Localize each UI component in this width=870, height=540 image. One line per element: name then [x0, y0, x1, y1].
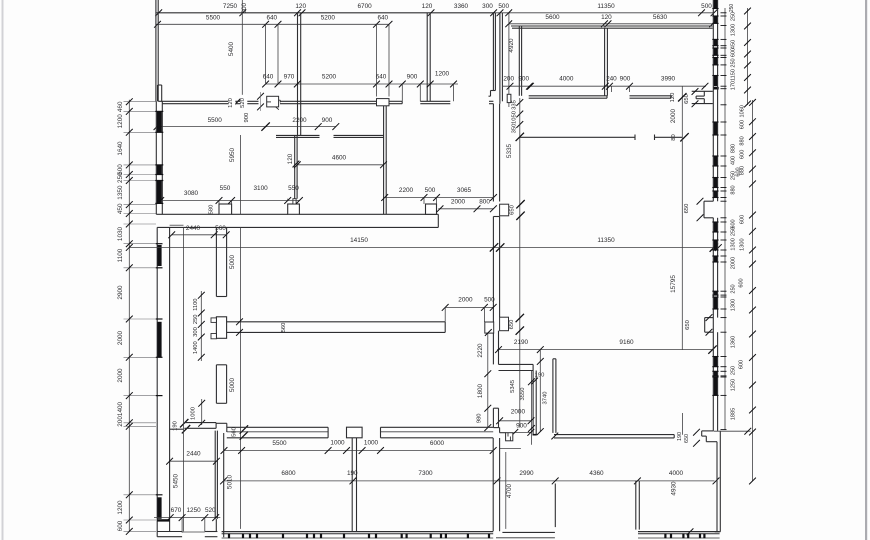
- svg-text:640: 640: [376, 73, 387, 80]
- svg-text:500: 500: [425, 187, 436, 194]
- svg-text:250: 250: [117, 172, 124, 183]
- svg-text:170: 170: [731, 81, 737, 90]
- svg-text:650: 650: [684, 204, 690, 214]
- svg-text:880: 880: [740, 136, 746, 145]
- svg-text:670: 670: [171, 507, 182, 514]
- svg-text:650: 650: [684, 434, 690, 443]
- svg-text:6700: 6700: [357, 3, 372, 10]
- svg-text:1360: 1360: [731, 336, 737, 348]
- svg-text:600: 600: [739, 360, 745, 369]
- svg-text:1050: 1050: [512, 111, 518, 124]
- svg-text:1100: 1100: [117, 248, 124, 262]
- svg-text:200: 200: [117, 416, 124, 427]
- svg-text:2220: 2220: [477, 343, 484, 358]
- svg-text:1150: 1150: [731, 69, 737, 81]
- svg-text:200: 200: [503, 76, 514, 83]
- svg-text:980: 980: [477, 413, 483, 423]
- svg-text:1200: 1200: [117, 500, 124, 515]
- svg-text:2440: 2440: [186, 225, 201, 232]
- svg-text:2900: 2900: [117, 285, 124, 300]
- svg-text:2000: 2000: [670, 108, 677, 123]
- svg-text:120: 120: [228, 98, 234, 108]
- svg-text:4930: 4930: [670, 481, 677, 496]
- svg-text:520: 520: [240, 98, 246, 108]
- svg-text:880: 880: [731, 185, 737, 194]
- svg-text:3550: 3550: [520, 388, 526, 401]
- svg-text:900: 900: [322, 117, 333, 124]
- svg-text:450: 450: [731, 40, 737, 49]
- svg-text:2000: 2000: [511, 408, 526, 415]
- svg-text:1640: 1640: [117, 141, 124, 156]
- svg-text:1030: 1030: [117, 226, 124, 241]
- svg-text:650: 650: [509, 320, 515, 330]
- svg-text:1000: 1000: [364, 440, 379, 447]
- svg-text:120: 120: [287, 153, 294, 164]
- svg-text:6800: 6800: [281, 470, 296, 477]
- svg-text:600: 600: [740, 120, 746, 129]
- svg-text:1350: 1350: [117, 185, 124, 200]
- svg-text:350: 350: [512, 124, 518, 134]
- svg-text:600: 600: [739, 278, 745, 287]
- svg-text:250: 250: [731, 227, 737, 236]
- svg-text:900: 900: [620, 76, 631, 83]
- svg-text:3065: 3065: [457, 187, 472, 194]
- svg-text:1000: 1000: [190, 407, 196, 420]
- svg-text:300: 300: [241, 2, 248, 13]
- svg-text:400: 400: [731, 156, 737, 165]
- svg-text:600: 600: [731, 48, 737, 57]
- svg-text:5600: 5600: [545, 14, 560, 21]
- svg-text:2990: 2990: [519, 470, 534, 477]
- svg-text:5335: 5335: [506, 143, 513, 158]
- svg-text:800: 800: [479, 199, 490, 206]
- svg-text:11350: 11350: [597, 3, 615, 10]
- svg-text:4000: 4000: [559, 76, 574, 83]
- svg-text:5200: 5200: [321, 15, 336, 22]
- svg-text:250: 250: [729, 4, 735, 13]
- svg-text:900: 900: [518, 76, 529, 83]
- svg-text:560: 560: [281, 323, 287, 333]
- svg-text:4700: 4700: [506, 483, 513, 498]
- svg-text:1300: 1300: [740, 238, 746, 250]
- svg-text:5630: 5630: [653, 14, 668, 21]
- svg-text:3100: 3100: [253, 185, 268, 192]
- svg-text:250: 250: [193, 314, 199, 324]
- svg-text:2000: 2000: [117, 330, 124, 345]
- svg-text:190: 190: [535, 373, 545, 379]
- svg-text:1400: 1400: [193, 341, 199, 354]
- svg-text:520: 520: [205, 507, 216, 514]
- svg-text:600: 600: [117, 520, 124, 531]
- svg-text:550: 550: [288, 185, 299, 192]
- svg-text:1800: 1800: [477, 383, 484, 398]
- svg-text:190: 190: [173, 421, 179, 431]
- svg-text:1000: 1000: [330, 440, 345, 447]
- svg-text:5500: 5500: [272, 440, 287, 447]
- svg-text:580: 580: [209, 205, 215, 215]
- svg-text:5500: 5500: [206, 15, 221, 22]
- svg-text:1250: 1250: [186, 507, 201, 514]
- svg-text:2000: 2000: [117, 368, 124, 383]
- svg-text:460: 460: [117, 101, 124, 112]
- svg-text:970: 970: [284, 73, 295, 80]
- svg-text:500: 500: [484, 297, 495, 304]
- svg-text:9160: 9160: [619, 339, 634, 346]
- svg-text:335: 335: [512, 100, 518, 110]
- svg-text:4000: 4000: [669, 470, 684, 477]
- svg-text:880: 880: [731, 144, 737, 153]
- svg-text:1300: 1300: [731, 24, 737, 36]
- svg-text:120: 120: [670, 93, 676, 103]
- svg-text:14150: 14150: [350, 237, 368, 244]
- svg-text:120: 120: [422, 3, 433, 10]
- svg-text:120: 120: [295, 3, 306, 10]
- svg-text:650: 650: [510, 205, 516, 215]
- svg-text:5500: 5500: [208, 117, 223, 124]
- svg-text:240: 240: [606, 76, 617, 83]
- svg-text:250: 250: [731, 366, 737, 375]
- svg-text:7250: 7250: [223, 3, 238, 10]
- svg-text:4360: 4360: [589, 470, 604, 477]
- svg-text:640: 640: [377, 15, 388, 22]
- svg-text:5345: 5345: [510, 380, 516, 393]
- svg-text:3360: 3360: [454, 3, 469, 10]
- svg-text:2440: 2440: [186, 451, 201, 458]
- svg-text:2000: 2000: [458, 297, 473, 304]
- svg-text:6000: 6000: [430, 440, 445, 447]
- svg-text:80: 80: [671, 134, 677, 140]
- svg-text:2200: 2200: [292, 117, 307, 124]
- svg-text:1400: 1400: [117, 401, 124, 416]
- svg-text:900: 900: [516, 423, 527, 430]
- svg-text:5400: 5400: [228, 41, 235, 56]
- svg-text:4600: 4600: [332, 154, 347, 161]
- svg-text:3990: 3990: [661, 76, 676, 83]
- svg-text:5010: 5010: [227, 474, 234, 489]
- svg-text:900: 900: [407, 73, 418, 80]
- svg-text:250: 250: [731, 12, 737, 21]
- svg-text:5950: 5950: [229, 147, 236, 162]
- svg-text:120: 120: [601, 14, 612, 21]
- svg-text:600: 600: [740, 215, 746, 224]
- svg-text:1250: 1250: [731, 379, 737, 391]
- svg-text:1200: 1200: [117, 114, 124, 129]
- svg-text:650: 650: [685, 320, 691, 330]
- svg-text:190: 190: [347, 470, 358, 477]
- svg-text:190: 190: [677, 432, 683, 441]
- svg-text:5000: 5000: [229, 254, 236, 269]
- svg-text:4920: 4920: [508, 38, 515, 53]
- svg-text:600: 600: [736, 167, 742, 176]
- svg-text:550: 550: [220, 185, 231, 192]
- svg-text:2000: 2000: [451, 199, 466, 206]
- svg-text:5200: 5200: [322, 73, 337, 80]
- svg-text:15795: 15795: [670, 275, 677, 293]
- svg-text:600: 600: [740, 150, 746, 159]
- svg-text:11350: 11350: [597, 237, 615, 244]
- svg-text:250: 250: [731, 284, 737, 293]
- svg-text:900: 900: [244, 113, 250, 123]
- svg-text:1300: 1300: [731, 238, 737, 250]
- svg-text:640: 640: [263, 73, 274, 80]
- svg-text:640: 640: [266, 15, 277, 22]
- svg-text:250: 250: [731, 58, 737, 67]
- svg-text:5000: 5000: [229, 377, 236, 392]
- svg-text:2190: 2190: [514, 339, 529, 346]
- svg-text:300: 300: [193, 327, 199, 337]
- svg-text:500: 500: [498, 3, 509, 10]
- svg-text:5450: 5450: [172, 473, 179, 488]
- svg-text:1300: 1300: [731, 299, 737, 311]
- svg-text:2000: 2000: [731, 257, 737, 269]
- svg-text:1200: 1200: [435, 71, 450, 78]
- svg-text:7300: 7300: [418, 470, 433, 477]
- svg-text:300: 300: [482, 3, 493, 10]
- svg-text:1100: 1100: [193, 298, 199, 310]
- svg-text:1885: 1885: [731, 408, 737, 420]
- svg-text:3080: 3080: [184, 190, 199, 197]
- svg-text:450: 450: [117, 203, 124, 214]
- svg-text:500: 500: [701, 3, 712, 10]
- svg-text:2200: 2200: [399, 187, 414, 194]
- svg-text:3740: 3740: [542, 392, 548, 405]
